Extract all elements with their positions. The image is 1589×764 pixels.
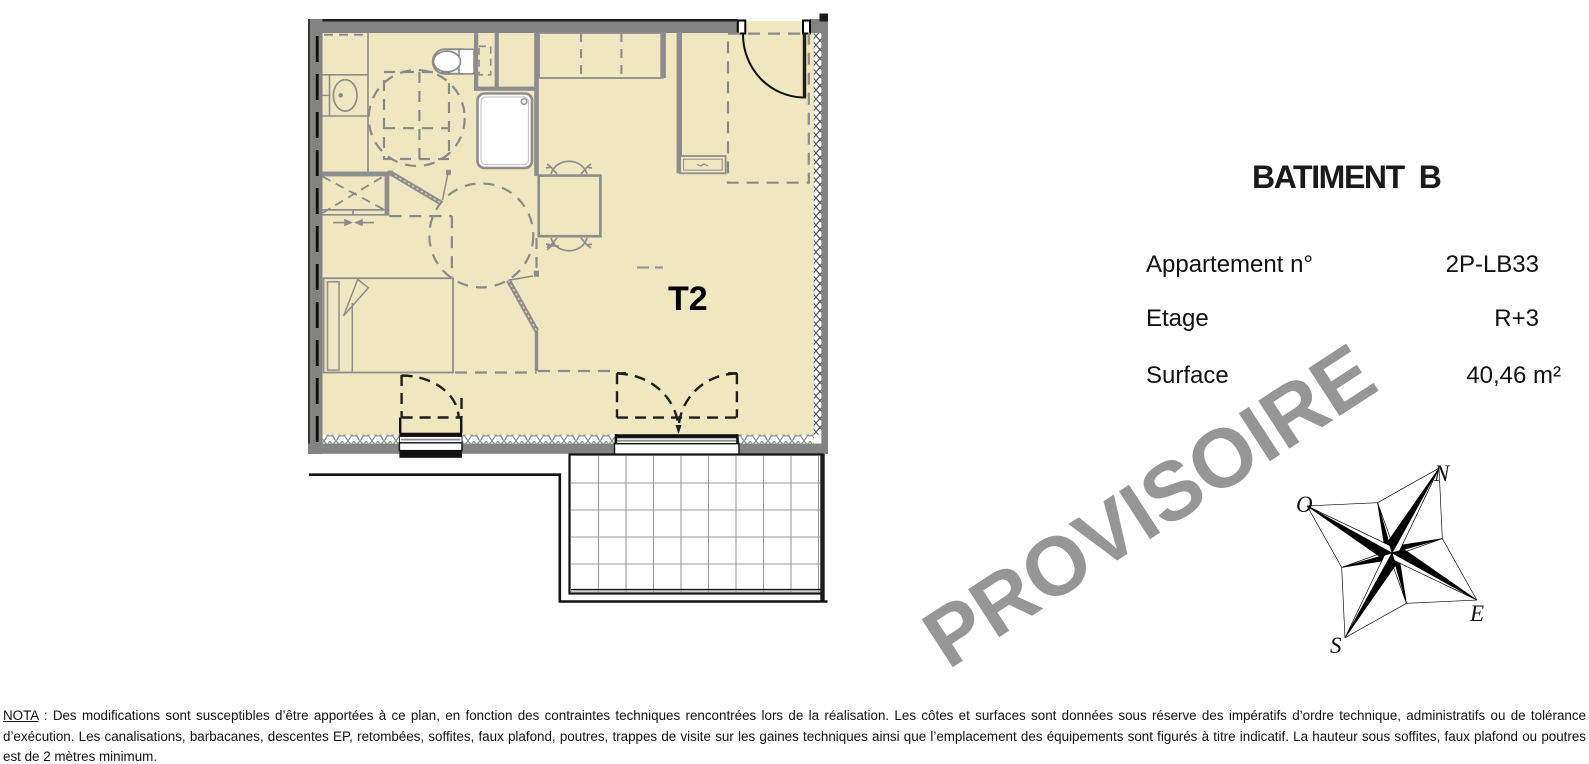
svg-text:S: S — [1330, 633, 1342, 658]
svg-text:T2: T2 — [668, 280, 708, 318]
svg-text:O: O — [1296, 492, 1313, 517]
svg-text:E: E — [1469, 601, 1484, 626]
svg-text:N: N — [1433, 461, 1451, 486]
